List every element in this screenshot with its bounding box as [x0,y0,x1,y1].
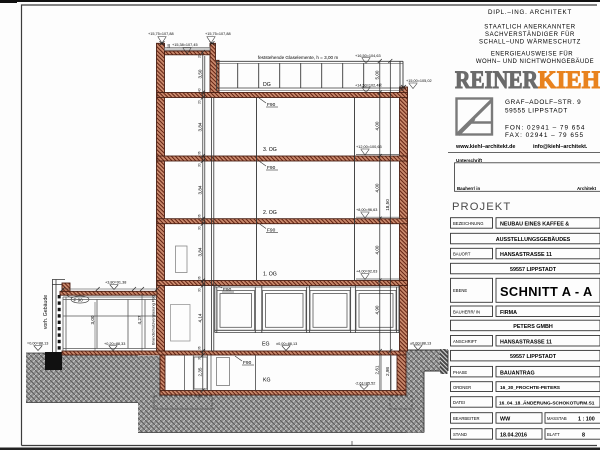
svg-text:ORDNER: ORDNER [453,385,471,390]
svg-text:2,98: 2,98 [385,367,390,376]
svg-text:30: 30 [198,356,202,360]
svg-text:BAUORT: BAUORT [453,252,471,257]
svg-text:GRAF–ADOLF–STR. 9: GRAF–ADOLF–STR. 9 [505,99,581,106]
svg-text:4,90: 4,90 [375,305,380,314]
svg-text:HANSASTRASSE 11: HANSASTRASSE 11 [500,340,552,346]
svg-text:3. OG: 3. OG [263,147,277,153]
svg-text:4,27: 4,27 [137,315,142,324]
svg-text:30: 30 [379,83,383,87]
svg-text:5,00: 5,00 [375,70,380,79]
svg-text:NEUBAU EINES KAFFEE &: NEUBAU EINES KAFFEE & [500,222,569,228]
svg-text:30: 30 [198,163,202,167]
svg-text:PHASE: PHASE [453,370,467,375]
svg-text:+8,00=96,63: +8,00=96,63 [356,208,377,212]
svg-text:FIRMA: FIRMA [500,310,517,316]
svg-text:2,61: 2,61 [375,365,380,374]
svg-text:WOHN– UND NICHTWOHNGEBÄUDE: WOHN– UND NICHTWOHNGEBÄUDE [476,58,594,65]
svg-text:WW: WW [500,417,511,423]
svg-text:Unterschrift: Unterschrift [456,158,483,163]
svg-text:3,50: 3,50 [198,69,203,78]
svg-text:2,35: 2,35 [198,367,203,376]
svg-text:20: 20 [198,54,202,58]
svg-text:2. OG: 2. OG [263,210,277,216]
svg-text:1. OG: 1. OG [263,272,277,278]
svg-text:DG: DG [263,82,271,88]
svg-text:+3,80=91,38: +3,80=91,38 [105,281,126,285]
svg-text:+4,00=92,63: +4,00=92,63 [356,270,377,274]
svg-text:DIPL.–ING. ARCHITEKT: DIPL.–ING. ARCHITEKT [488,9,572,16]
svg-text:REINER: REINER [455,67,539,94]
svg-text:feststehende Glaselemente, h =: feststehende Glaselemente, h = 3,00 m [258,55,338,60]
svg-text:STAATLICH ANERKANNTER: STAATLICH ANERKANNTER [484,25,575,31]
svg-text:EBENE: EBENE [453,288,467,293]
svg-text:30: 30 [198,288,202,292]
svg-text:30: 30 [198,394,202,398]
svg-text:+15,38=107,45: +15,38=107,45 [172,43,198,47]
svg-text:HANSASTRASSE 11: HANSASTRASSE 11 [500,252,552,258]
svg-text:BLATT: BLATT [547,432,560,437]
svg-text:Bauherr/ in: Bauherr/ in [457,186,480,191]
svg-text:BAUHERR/ IN: BAUHERR/ IN [453,310,480,315]
svg-text:8: 8 [582,433,585,439]
svg-text:20: 20 [198,100,202,104]
svg-text:SCHALL–UND WÄRMESCHUTZ: SCHALL–UND WÄRMESCHUTZ [479,39,581,46]
svg-text:STAND: STAND [453,432,467,437]
svg-text:18,50: 18,50 [385,199,390,211]
svg-text:18: 18 [167,44,171,48]
svg-text:AUSSTELLUNGSGEBÄUDES: AUSSTELLUNGSGEBÄUDES [496,236,571,243]
svg-text:3,00: 3,00 [90,315,95,324]
svg-text:+15,75=107,88: +15,75=107,88 [205,32,231,36]
svg-text:Brandschutzverglasung F90: Brandschutzverglasung F90 [151,294,156,345]
svg-text:Architekt: Architekt [577,186,597,191]
svg-text:DATEI: DATEI [453,400,465,405]
svg-text:+15,75=107,88: +15,75=107,88 [148,32,174,36]
svg-text:59557 LIPPSTADT: 59557 LIPPSTADT [510,354,557,360]
svg-text:3,84: 3,84 [198,247,203,256]
svg-text:F 90: F 90 [74,298,84,303]
svg-text:ANSCHRIFT: ANSCHRIFT [453,339,477,344]
svg-text:30: 30 [198,226,202,230]
svg-text:16_30_FROCHTE-PETERS: 16_30_FROCHTE-PETERS [500,385,561,391]
svg-text:18.04.2016: 18.04.2016 [500,433,527,439]
svg-text:BAUANTRAG: BAUANTRAG [500,370,535,376]
svg-text:3,84: 3,84 [198,185,203,194]
svg-text:KG: KG [263,378,271,384]
svg-text:4,14: 4,14 [198,313,203,322]
svg-text:BEARBEITER: BEARBEITER [453,416,480,421]
svg-text:FAX: 02941 – 79 655: FAX: 02941 – 79 655 [505,132,584,139]
svg-text:4,00: 4,00 [375,121,380,130]
svg-text:40: 40 [198,88,202,92]
svg-text:EG: EG [262,342,270,348]
svg-text:1 : 100: 1 : 100 [578,417,595,423]
svg-text:36: 36 [198,214,202,218]
svg-text:vorh. Gebäude: vorh. Gebäude [43,295,49,329]
svg-text:MASSTAB: MASSTAB [547,416,567,421]
svg-text:59557 LIPPSTADT: 59557 LIPPSTADT [510,267,557,273]
svg-text:=0,00=88,13: =0,00=88,13 [27,342,48,346]
svg-text:www.kiehl–architekt.de: www.kiehl–architekt.de [455,144,515,150]
svg-text:PROJEKT: PROJEKT [452,201,511,213]
svg-text:BEZEICHNUNG: BEZEICHNUNG [453,221,483,226]
svg-text:FON: 02941 – 79 654: FON: 02941 – 79 654 [505,125,585,132]
svg-text:4,00: 4,00 [375,183,380,192]
svg-text:SACHVERSTÄNDIGER FÜR: SACHVERSTÄNDIGER FÜR [485,31,575,38]
svg-text:4,00: 4,00 [375,245,380,254]
svg-text:KIEHL: KIEHL [538,67,600,94]
svg-text:SCHNITT A - A: SCHNITT A - A [500,284,593,299]
svg-text:ENERGIEAUSWEISE FÜR: ENERGIEAUSWEISE FÜR [491,51,573,58]
svg-text:36: 36 [198,276,202,280]
svg-text:36: 36 [198,346,202,350]
svg-text:+15,00=105,02: +15,00=105,02 [406,79,432,83]
svg-text:3,84: 3,84 [198,122,203,131]
svg-text:36: 36 [198,151,202,155]
svg-text:16_04_18_ÄNDERUNG-SCHOKOTURM.S: 16_04_18_ÄNDERUNG-SCHOKOTURM.S1 [499,400,595,407]
svg-text:PETERS GMBH: PETERS GMBH [513,324,553,330]
svg-text:+12,00=100,63: +12,00=100,63 [356,145,382,149]
svg-text:info@kiehl–architekt.: info@kiehl–architekt. [533,144,588,150]
svg-text:59555 LIPPSTADT: 59555 LIPPSTADT [505,108,568,115]
